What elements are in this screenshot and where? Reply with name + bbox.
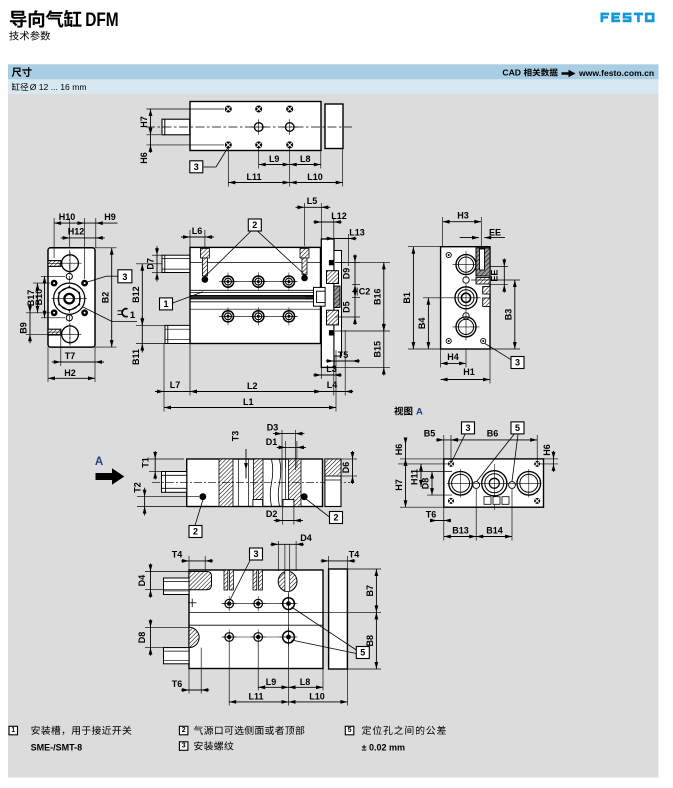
svg-text:B17: B17 — [26, 290, 36, 307]
svg-text:C2: C2 — [359, 287, 371, 297]
svg-text:T5: T5 — [338, 350, 349, 360]
svg-text:H7: H7 — [139, 116, 149, 128]
svg-text:B13: B13 — [452, 525, 469, 535]
svg-text:± 0.02 mm: ± 0.02 mm — [362, 743, 405, 753]
svg-text:5: 5 — [348, 727, 352, 734]
svg-text:B8: B8 — [365, 635, 375, 647]
svg-text:L6: L6 — [192, 226, 203, 236]
svg-text:H9: H9 — [104, 212, 116, 222]
svg-text:2: 2 — [182, 727, 186, 734]
svg-text:T1: T1 — [140, 457, 150, 468]
svg-text:H3: H3 — [457, 211, 469, 221]
svg-text:Ø 12 ... 16 mm: Ø 12 ... 16 mm — [30, 82, 87, 92]
svg-text:B12: B12 — [131, 286, 141, 303]
svg-text:L13: L13 — [349, 227, 365, 237]
svg-text:L11: L11 — [246, 172, 261, 182]
svg-text:D9: D9 — [341, 268, 351, 280]
svg-text:3: 3 — [515, 358, 520, 368]
svg-text:D8: D8 — [137, 632, 147, 644]
svg-text:5: 5 — [360, 648, 365, 658]
svg-text:B9: B9 — [19, 322, 29, 334]
svg-text:A: A — [95, 456, 103, 468]
svg-text:T6: T6 — [426, 509, 437, 519]
svg-text:D6: D6 — [341, 462, 351, 474]
svg-text:3: 3 — [122, 272, 127, 282]
svg-text:H6: H6 — [542, 444, 552, 456]
svg-text:T4: T4 — [349, 550, 360, 560]
svg-text:2: 2 — [193, 527, 198, 537]
svg-text:T6: T6 — [172, 679, 183, 689]
svg-text:H1: H1 — [463, 367, 475, 377]
svg-text:L10: L10 — [307, 172, 323, 182]
svg-text:1: 1 — [11, 727, 15, 734]
svg-text:D1: D1 — [266, 437, 278, 447]
svg-text:L8: L8 — [300, 677, 311, 687]
svg-text:H4: H4 — [447, 352, 459, 362]
svg-text:T7: T7 — [65, 351, 76, 361]
svg-text:H6: H6 — [139, 152, 149, 164]
svg-text:2: 2 — [333, 513, 338, 523]
svg-text:H6: H6 — [394, 444, 404, 456]
svg-text:B15: B15 — [373, 341, 383, 358]
svg-text:L8: L8 — [300, 154, 311, 164]
svg-text:B6: B6 — [487, 429, 499, 439]
svg-text:3: 3 — [253, 549, 258, 559]
svg-text:CAD: CAD — [502, 68, 521, 78]
svg-text:L7: L7 — [170, 380, 181, 390]
svg-text:EE: EE — [489, 227, 501, 237]
svg-text:1: 1 — [163, 299, 168, 309]
svg-text:L9: L9 — [269, 154, 280, 164]
svg-text:T3: T3 — [231, 431, 241, 442]
svg-text:3: 3 — [182, 743, 186, 750]
svg-text:H7: H7 — [394, 479, 404, 491]
svg-text:DFM: DFM — [85, 10, 119, 31]
svg-text:2: 2 — [252, 220, 257, 230]
svg-text:T2: T2 — [132, 482, 142, 493]
svg-text:T4: T4 — [172, 550, 183, 560]
svg-text:D3: D3 — [267, 423, 279, 433]
svg-text:A: A — [416, 407, 423, 418]
svg-text:5: 5 — [515, 423, 520, 433]
svg-text:D5: D5 — [341, 301, 351, 313]
svg-text:B1: B1 — [402, 292, 412, 304]
svg-text:B3: B3 — [504, 309, 514, 321]
svg-text:B14: B14 — [486, 525, 503, 535]
svg-text:SME-/SMT-8: SME-/SMT-8 — [31, 743, 83, 753]
svg-text:H10: H10 — [59, 212, 76, 222]
svg-text:L2: L2 — [247, 381, 258, 391]
svg-text:B7: B7 — [365, 585, 375, 597]
svg-text:D4: D4 — [137, 575, 147, 587]
svg-text:L1: L1 — [243, 397, 254, 407]
svg-text:3: 3 — [194, 162, 199, 172]
svg-text:B2: B2 — [100, 292, 110, 304]
svg-text:H11: H11 — [410, 469, 420, 485]
svg-text:B11: B11 — [131, 349, 141, 365]
svg-text:L11: L11 — [248, 691, 263, 701]
svg-text:B16: B16 — [373, 288, 383, 305]
svg-text:L3: L3 — [326, 364, 337, 374]
svg-text:L12: L12 — [331, 211, 347, 221]
svg-text:D4: D4 — [300, 533, 312, 543]
svg-text:L10: L10 — [309, 691, 325, 701]
svg-text:1: 1 — [130, 310, 136, 321]
svg-text:L9: L9 — [266, 677, 277, 687]
svg-text:H12: H12 — [68, 227, 85, 237]
svg-text:www.festo.com.cn: www.festo.com.cn — [578, 68, 654, 78]
svg-text:D2: D2 — [266, 509, 278, 519]
svg-text:B5: B5 — [424, 429, 436, 439]
svg-text:B4: B4 — [417, 318, 427, 330]
svg-text:D8: D8 — [421, 478, 431, 490]
svg-text:H2: H2 — [64, 368, 76, 378]
svg-text:3: 3 — [465, 423, 470, 433]
svg-text:L5: L5 — [307, 196, 318, 206]
